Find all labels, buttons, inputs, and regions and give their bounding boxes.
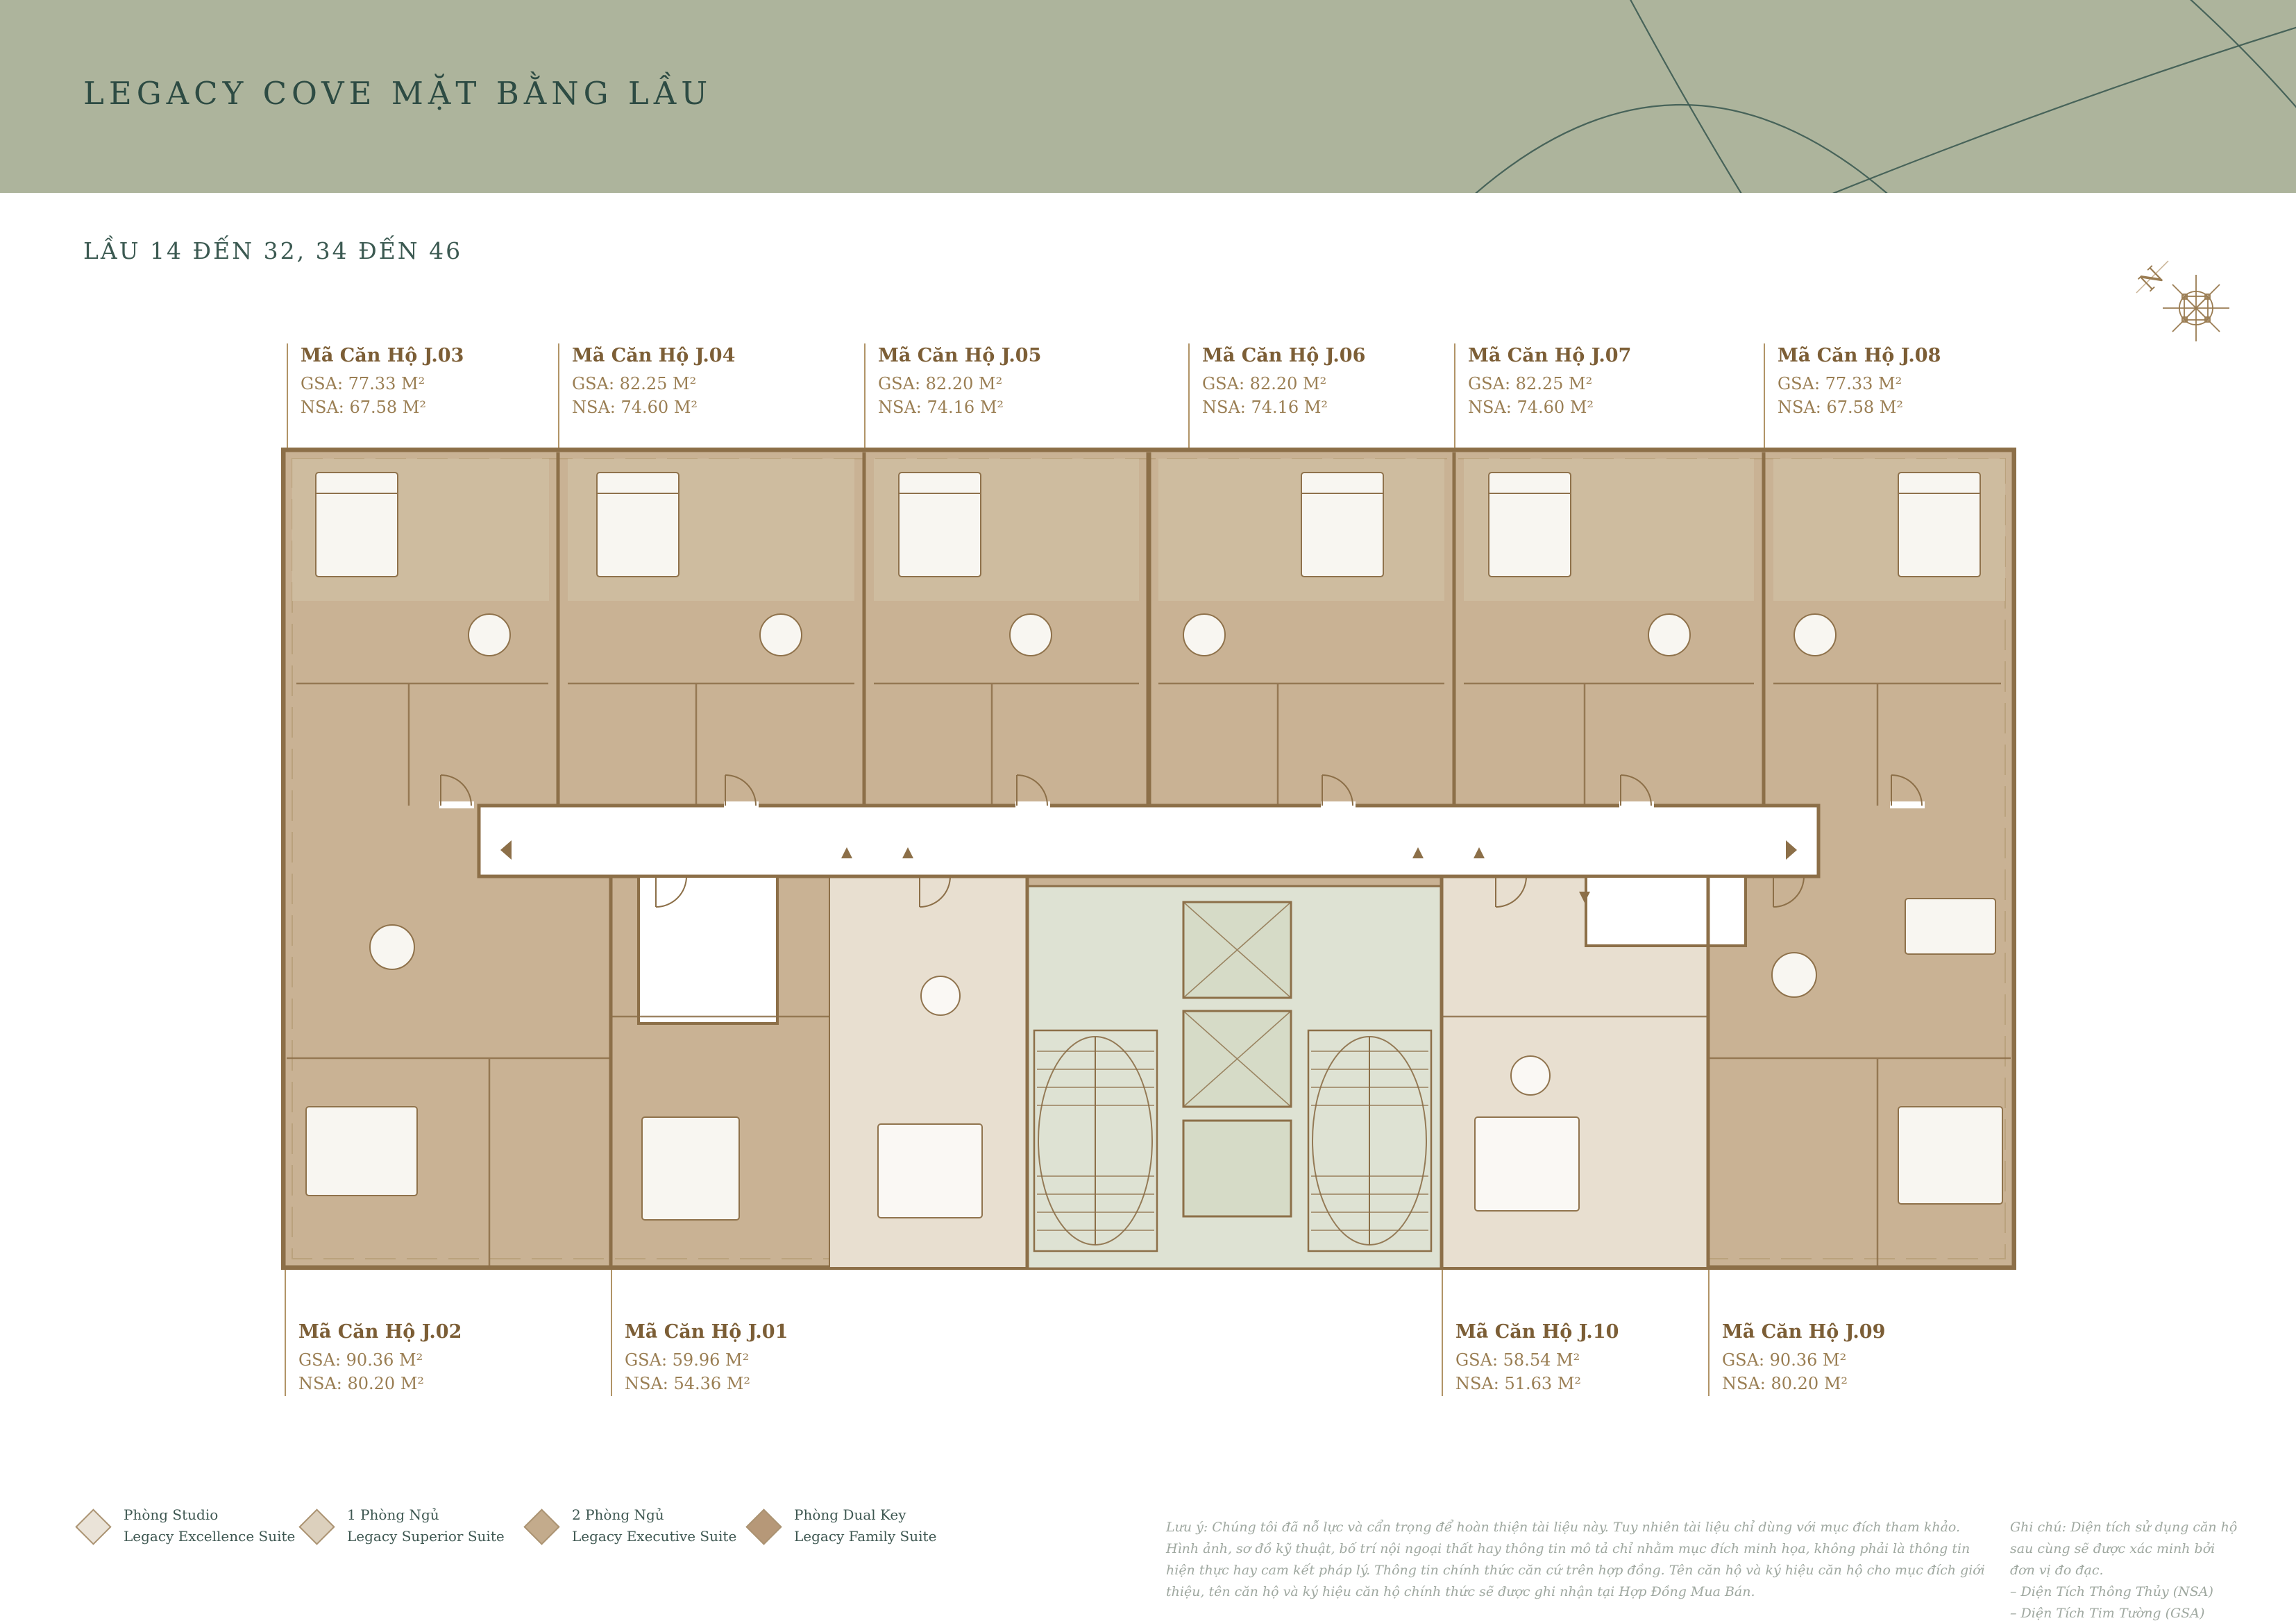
- brochure-page: LEGACY COVE MẶT BẰNG LẦU LẦU 14 ĐẾN 32, …: [0, 0, 2296, 1623]
- unit-label-j03: Mã Căn Hộ J.03 GSA: 77.33 M² NSA: 67.58 …: [287, 343, 509, 448]
- unit-label-j04: Mã Căn Hộ J.04 GSA: 82.25 M² NSA: 74.60 …: [558, 343, 780, 448]
- core-area: [1027, 886, 1442, 1268]
- area-note-nsa: – Diện Tích Thông Thủy (NSA): [2010, 1581, 2243, 1603]
- legend-item-2br: 2 Phòng Ngủ Legacy Executive Suite: [526, 1504, 736, 1564]
- area-note: Ghi chú: Diện tích sử dụng căn hộ sau cù…: [2010, 1517, 2243, 1623]
- unit-label-j08: Mã Căn Hộ J.08 GSA: 77.33 M² NSA: 67.58 …: [1764, 343, 1986, 448]
- area-note-intro: Ghi chú: Diện tích sử dụng căn hộ sau cù…: [2010, 1517, 2243, 1581]
- floor-range-subtitle: LẦU 14 ĐẾN 32, 34 ĐẾN 46: [83, 237, 462, 264]
- compass-icon: N: [2124, 248, 2270, 366]
- page-header: LEGACY COVE MẶT BẰNG LẦU: [0, 0, 2296, 193]
- unit-label-j09: Mã Căn Hộ J.09 GSA: 90.36 M² NSA: 80.20 …: [1708, 1270, 1930, 1396]
- unit-label-j02: Mã Căn Hộ J.02 GSA: 90.36 M² NSA: 80.20 …: [285, 1270, 507, 1396]
- compass-north-label: N: [2134, 262, 2170, 297]
- disclaimer-note: Lưu ý: Chúng tôi đã nỗ lực và cẩn trọng …: [1166, 1517, 1992, 1603]
- area-note-gsa: – Diện Tích Tim Tường (GSA): [2010, 1603, 2243, 1623]
- legend-item-studio: Phòng Studio Legacy Excellence Suite: [78, 1504, 295, 1564]
- legend-item-dual-key: Phòng Dual Key Legacy Family Suite: [748, 1504, 936, 1564]
- unit-label-j06: Mã Căn Hộ J.06 GSA: 82.20 M² NSA: 74.16 …: [1188, 343, 1410, 448]
- studio-swatch-icon: [75, 1509, 111, 1545]
- unit-label-j01: Mã Căn Hộ J.01 GSA: 59.96 M² NSA: 54.36 …: [611, 1270, 833, 1396]
- legend-item-1br: 1 Phòng Ngủ Legacy Superior Suite: [301, 1504, 505, 1564]
- unit-label-j10: Mã Căn Hộ J.10 GSA: 58.54 M² NSA: 51.63 …: [1442, 1270, 1664, 1396]
- one-bedroom-swatch-icon: [298, 1509, 335, 1545]
- two-bedroom-swatch-icon: [523, 1509, 559, 1545]
- unit-label-j05: Mã Căn Hộ J.05 GSA: 82.20 M² NSA: 74.16 …: [864, 343, 1086, 448]
- dual-key-swatch-icon: [745, 1509, 782, 1545]
- unit-label-j07: Mã Căn Hộ J.07 GSA: 82.25 M² NSA: 74.60 …: [1454, 343, 1676, 448]
- floor-plan: [281, 448, 2016, 1270]
- page-title: LEGACY COVE MẶT BẰNG LẦU: [83, 75, 712, 112]
